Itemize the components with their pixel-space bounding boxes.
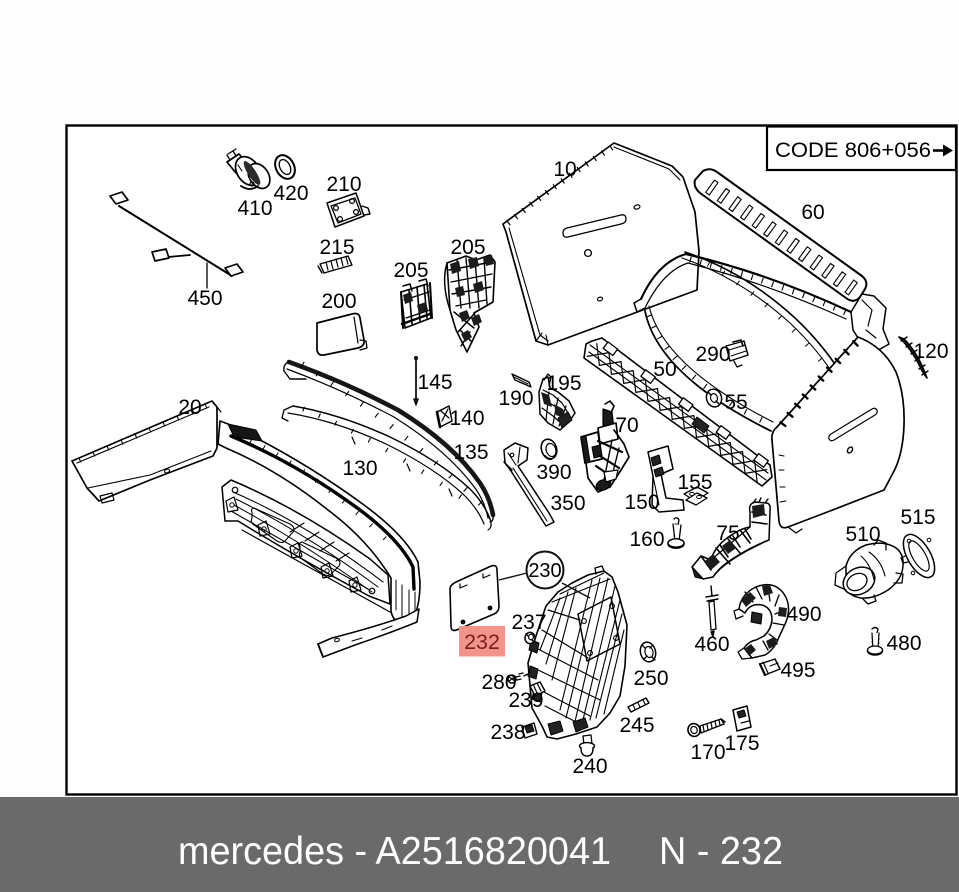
svg-text:60: 60 xyxy=(801,201,824,224)
svg-text:170: 170 xyxy=(690,741,725,764)
svg-text:140: 140 xyxy=(449,407,484,430)
svg-text:CODE 806+056: CODE 806+056 xyxy=(775,138,931,162)
svg-text:205: 205 xyxy=(393,259,428,282)
svg-text:10: 10 xyxy=(553,158,576,181)
svg-text:N - 232: N - 232 xyxy=(659,830,783,873)
svg-text:mercedes - A2516820041: mercedes - A2516820041 xyxy=(178,830,611,873)
svg-text:490: 490 xyxy=(786,603,821,626)
svg-text:240: 240 xyxy=(572,755,607,778)
svg-text:120: 120 xyxy=(913,340,948,363)
svg-text:155: 155 xyxy=(677,471,712,494)
svg-text:390: 390 xyxy=(536,461,571,484)
svg-text:205: 205 xyxy=(450,236,485,259)
svg-text:239: 239 xyxy=(508,689,543,712)
svg-text:210: 210 xyxy=(326,173,361,196)
svg-text:20: 20 xyxy=(178,396,201,419)
svg-text:150: 150 xyxy=(624,491,659,514)
svg-text:510: 510 xyxy=(845,523,880,546)
svg-text:50: 50 xyxy=(653,358,676,381)
svg-text:230: 230 xyxy=(528,560,561,582)
svg-text:55: 55 xyxy=(724,391,747,414)
svg-text:145: 145 xyxy=(417,371,452,394)
svg-text:175: 175 xyxy=(724,732,759,755)
svg-text:350: 350 xyxy=(550,492,585,515)
svg-text:460: 460 xyxy=(694,633,729,656)
svg-text:410: 410 xyxy=(237,197,272,220)
svg-text:515: 515 xyxy=(900,506,935,529)
svg-text:135: 135 xyxy=(453,441,488,464)
svg-text:70: 70 xyxy=(615,414,638,437)
svg-text:450: 450 xyxy=(187,287,222,310)
svg-text:130: 130 xyxy=(342,457,377,480)
svg-text:190: 190 xyxy=(498,387,533,410)
svg-text:215: 215 xyxy=(319,236,354,259)
svg-text:245: 245 xyxy=(619,714,654,737)
svg-text:237: 237 xyxy=(511,611,546,634)
svg-text:420: 420 xyxy=(273,182,308,205)
svg-text:200: 200 xyxy=(321,290,356,313)
svg-text:232: 232 xyxy=(464,630,500,654)
svg-text:290: 290 xyxy=(695,343,730,366)
svg-text:160: 160 xyxy=(629,528,664,551)
svg-text:495: 495 xyxy=(780,659,815,682)
svg-text:75: 75 xyxy=(716,522,739,545)
svg-text:195: 195 xyxy=(546,372,581,395)
svg-text:238: 238 xyxy=(490,721,525,744)
svg-text:250: 250 xyxy=(633,667,668,690)
svg-text:480: 480 xyxy=(886,632,921,655)
